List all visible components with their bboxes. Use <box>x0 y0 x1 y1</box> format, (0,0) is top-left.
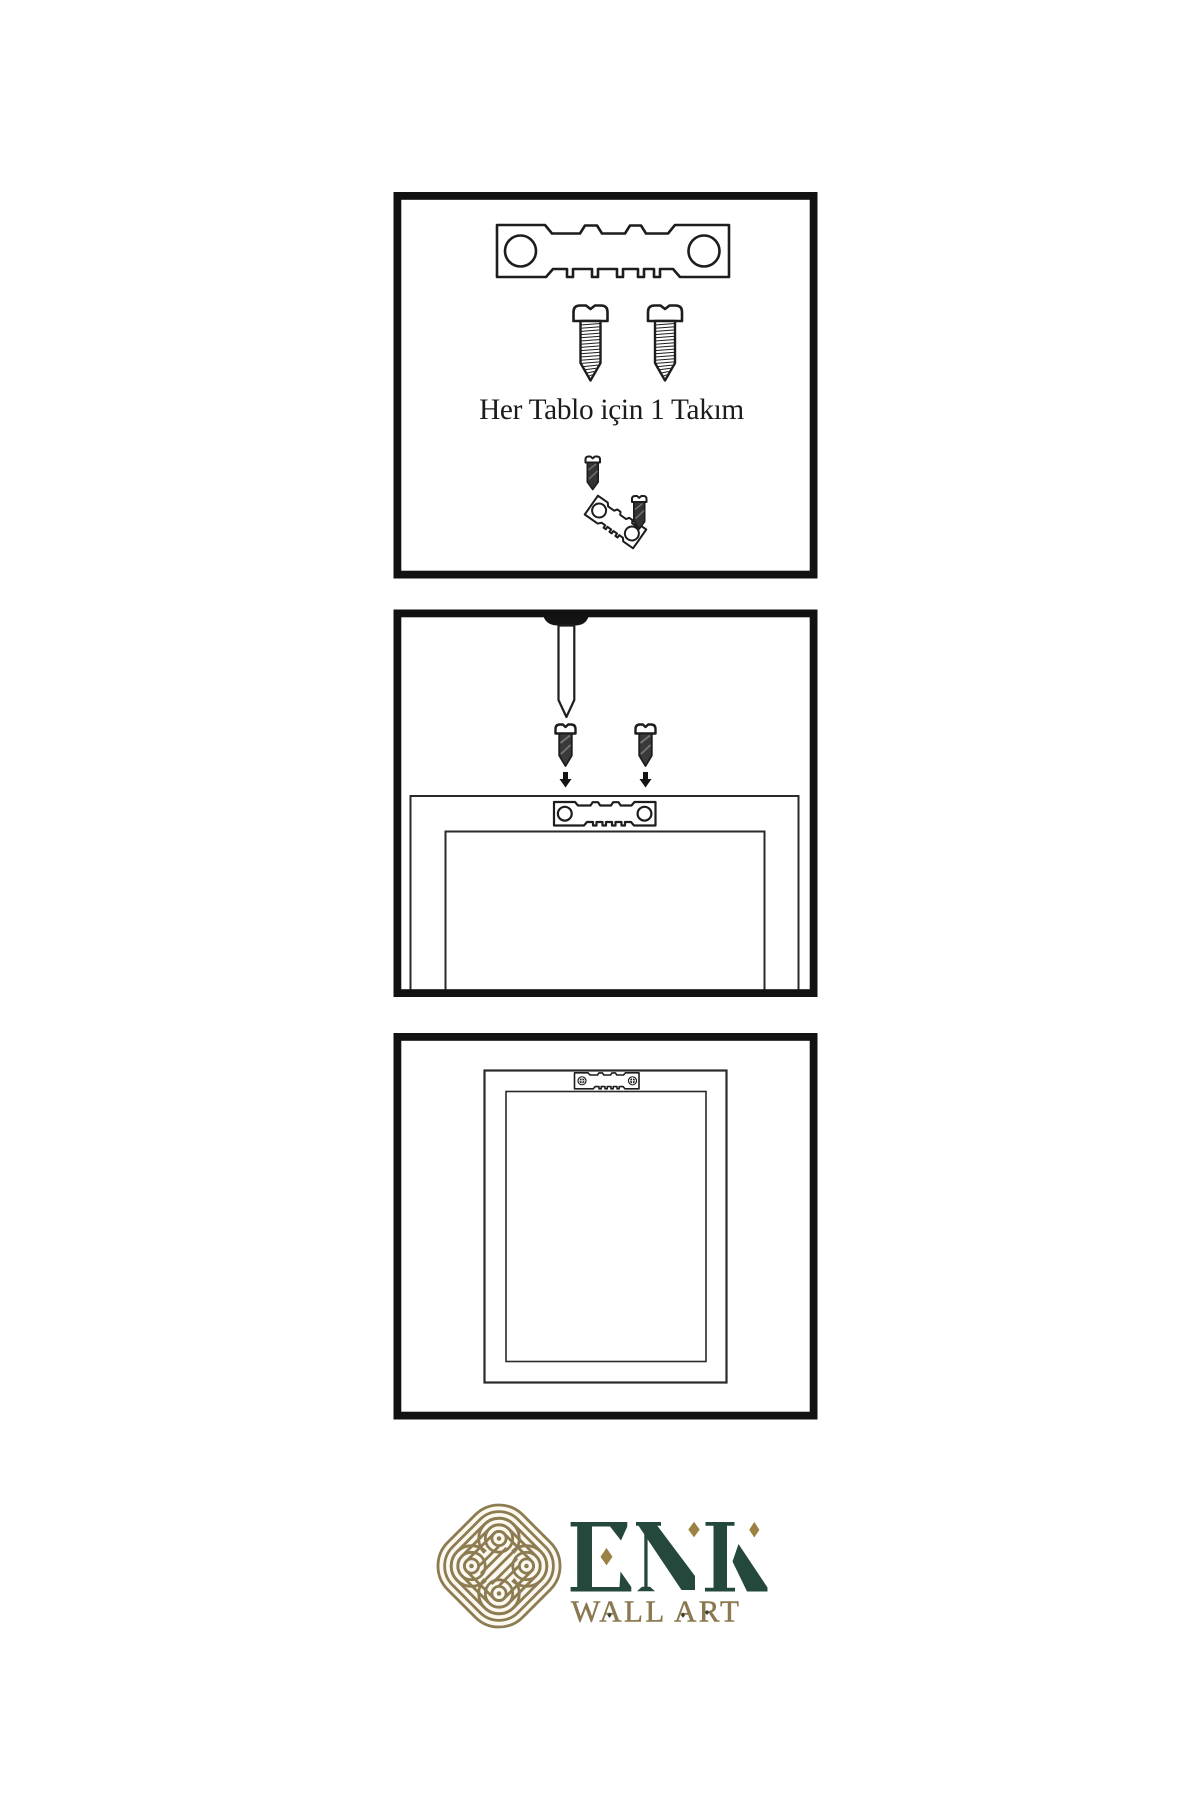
svg-text:Her Tablo için 1 Takım: Her Tablo için 1 Takım <box>479 394 744 426</box>
svg-text:WALL ART: WALL ART <box>571 1594 741 1629</box>
